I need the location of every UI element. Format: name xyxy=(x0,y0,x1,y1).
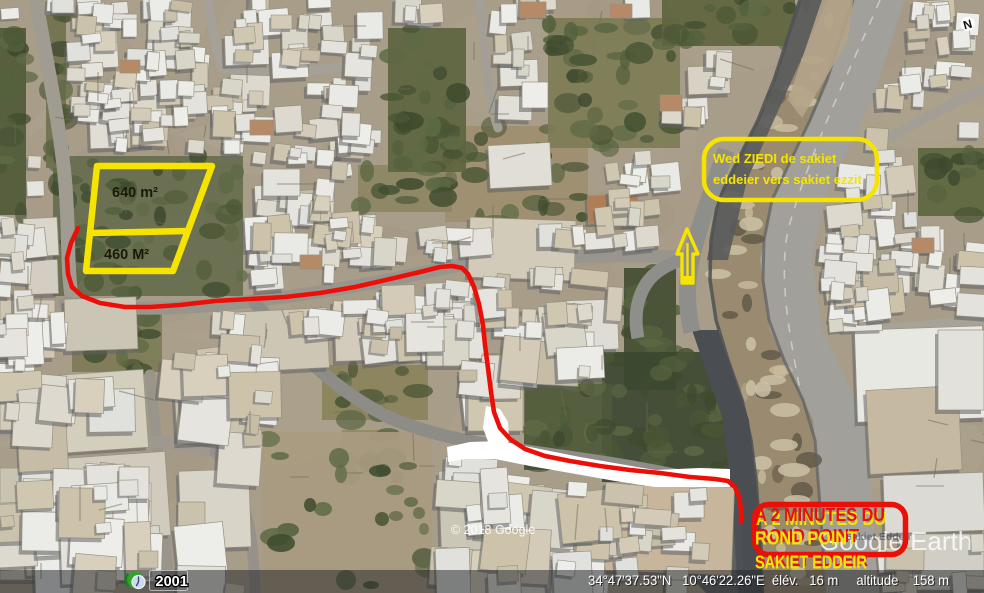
svg-text:ROND POINT: ROND POINT xyxy=(755,529,857,549)
svg-text:A 2 MINUTES DU: A 2 MINUTES DU xyxy=(755,505,885,525)
svg-text:460 M²: 460 M² xyxy=(104,247,149,263)
svg-text:34°47'37.53"N 10°46'22.26"E: 34°47'37.53"N 10°46'22.26"E élév. 16 m a… xyxy=(588,572,949,588)
svg-text:© 2018 Google: © 2018 Google xyxy=(451,523,535,537)
svg-text:640 m²: 640 m² xyxy=(112,185,158,201)
svg-text:SAKIET EDDEIR: SAKIET EDDEIR xyxy=(755,553,867,573)
svg-text:Wed ZIEDI de sakiet: Wed ZIEDI de sakiet xyxy=(713,151,837,166)
svg-text:2001: 2001 xyxy=(156,574,188,590)
svg-text:eddeier vers sakiet ezzit: eddeier vers sakiet ezzit xyxy=(713,172,863,187)
